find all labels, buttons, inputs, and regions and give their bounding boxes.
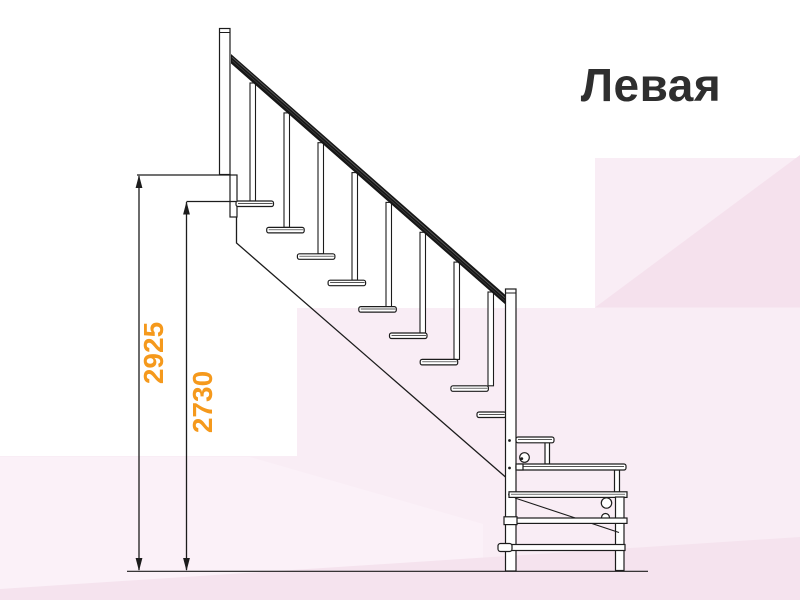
baluster	[284, 113, 290, 227]
upper-mount-bracket	[230, 175, 237, 217]
baluster	[488, 292, 494, 386]
frame-mid-bar	[509, 518, 627, 523]
landing-step	[516, 437, 554, 443]
bolt-hole	[601, 498, 611, 508]
diagram-canvas: 2925 2730 Левая	[0, 0, 800, 600]
baluster	[454, 262, 460, 359]
page-title: Левая	[566, 58, 736, 112]
dimension-label-overall-height: 2925	[138, 322, 169, 384]
dimension-label-flight-height: 2730	[187, 371, 218, 433]
baluster	[386, 202, 392, 306]
bolt-dot	[520, 457, 523, 460]
frame-top-bar	[509, 492, 627, 498]
upper-newel-post	[220, 29, 231, 175]
tread	[236, 201, 274, 207]
baluster	[318, 143, 324, 254]
landing-step-support	[615, 470, 620, 492]
landing-step-cap	[516, 464, 523, 470]
lower-newel-post	[506, 289, 517, 571]
fixing-dot	[508, 467, 511, 470]
fixing-dot	[508, 439, 511, 442]
baluster	[250, 83, 256, 201]
frame-bottom-bar-cap	[498, 544, 512, 552]
frame-right-leg	[616, 497, 625, 571]
frame-bottom-bar	[509, 545, 625, 551]
frame-mid-bar-cap	[504, 517, 517, 525]
baluster	[352, 173, 358, 281]
baluster	[420, 232, 426, 333]
landing-step-support	[545, 443, 550, 465]
landing-step	[516, 464, 626, 470]
